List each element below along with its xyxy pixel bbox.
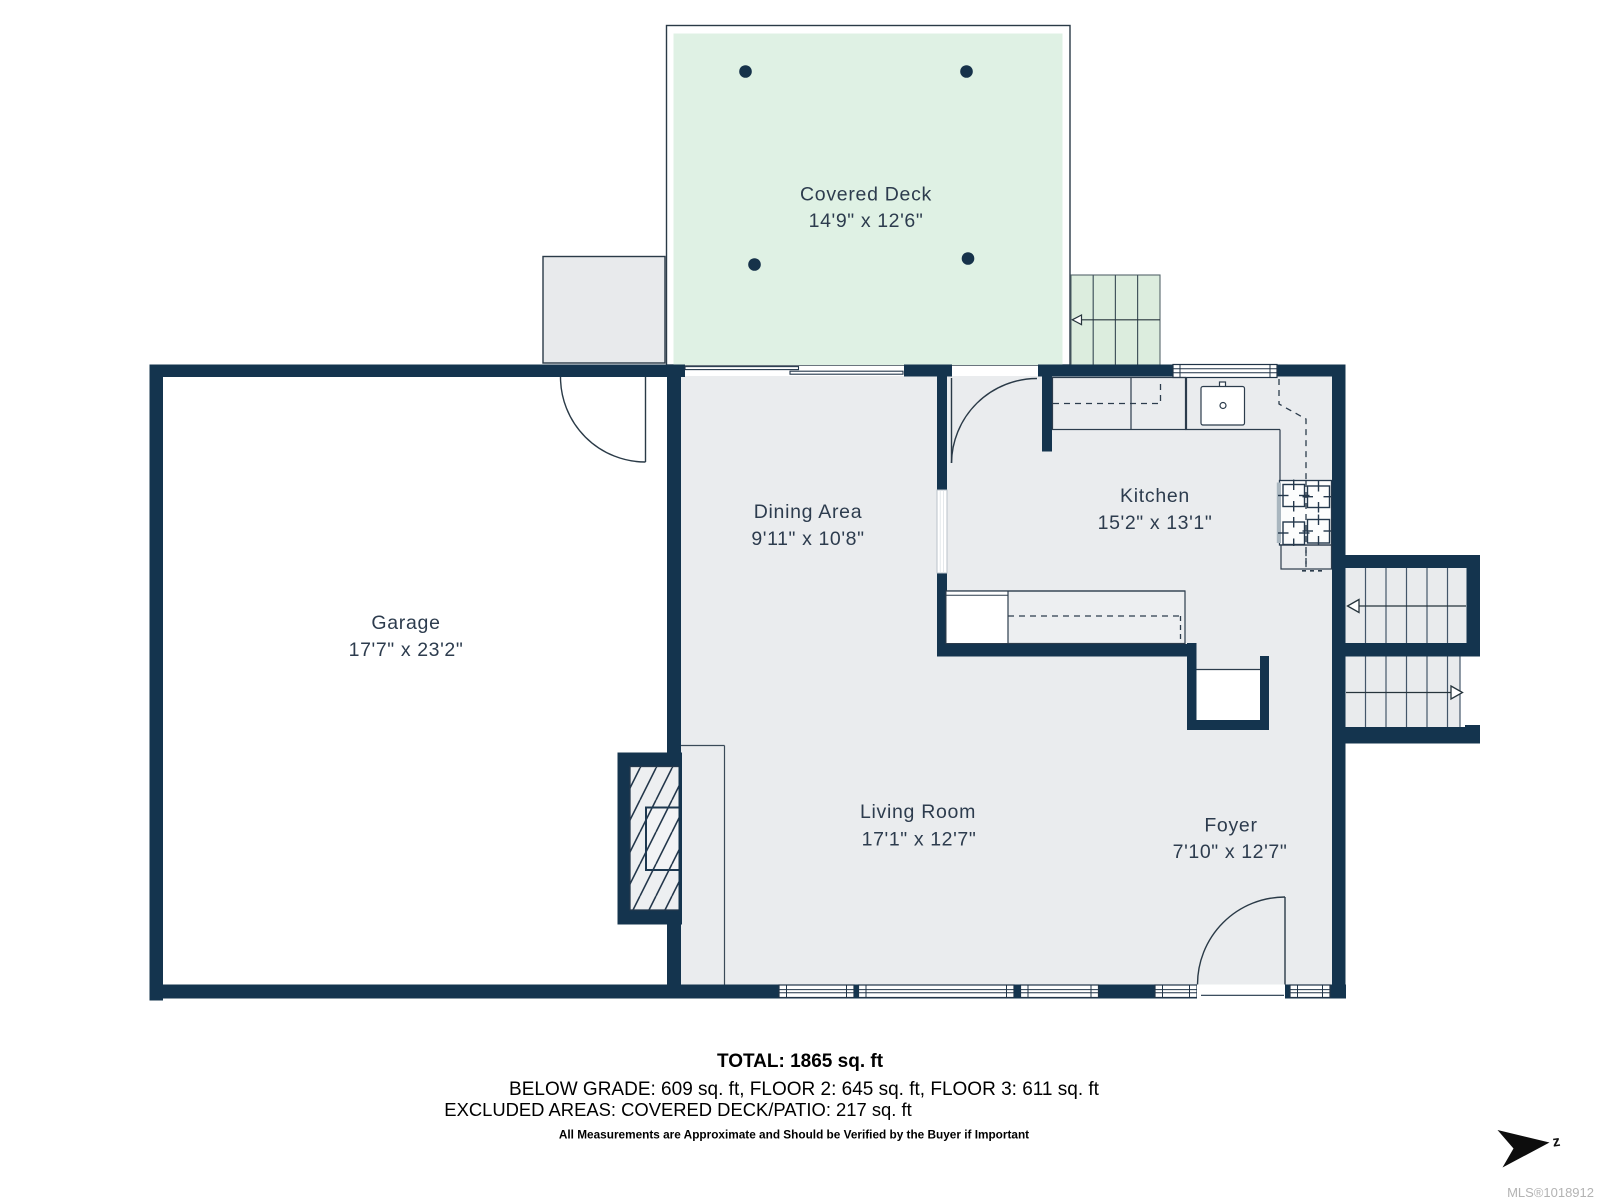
svg-text:9'11" x 10'8": 9'11" x 10'8"	[751, 528, 864, 550]
svg-text:TOTAL: 1865 sq. ft: TOTAL: 1865 sq. ft	[717, 1051, 884, 1072]
svg-text:14'9" x 12'6": 14'9" x 12'6"	[809, 210, 924, 232]
svg-text:MLS®1018912: MLS®1018912	[1507, 1185, 1594, 1200]
svg-text:Dining Area: Dining Area	[754, 501, 863, 523]
svg-text:EXCLUDED AREAS: COVERED DECK/P: EXCLUDED AREAS: COVERED DECK/PATIO: 217 …	[444, 1099, 911, 1120]
svg-text:17'1" x 12'7": 17'1" x 12'7"	[862, 829, 977, 851]
svg-text:BELOW GRADE: 609 sq. ft, FLOOR: BELOW GRADE: 609 sq. ft, FLOOR 2: 645 sq…	[509, 1079, 1100, 1100]
svg-text:Covered Deck: Covered Deck	[800, 184, 932, 206]
svg-text:Foyer: Foyer	[1204, 815, 1257, 837]
svg-text:Kitchen: Kitchen	[1120, 485, 1190, 507]
svg-text:Living Room: Living Room	[860, 801, 976, 823]
svg-text:Garage: Garage	[371, 612, 440, 634]
svg-text:All Measurements are Approxima: All Measurements are Approximate and Sho…	[559, 1128, 1029, 1142]
svg-text:7'10" x 12'7": 7'10" x 12'7"	[1173, 841, 1288, 863]
svg-text:17'7" x 23'2": 17'7" x 23'2"	[349, 639, 464, 661]
svg-text:15'2" x 13'1": 15'2" x 13'1"	[1098, 512, 1213, 534]
